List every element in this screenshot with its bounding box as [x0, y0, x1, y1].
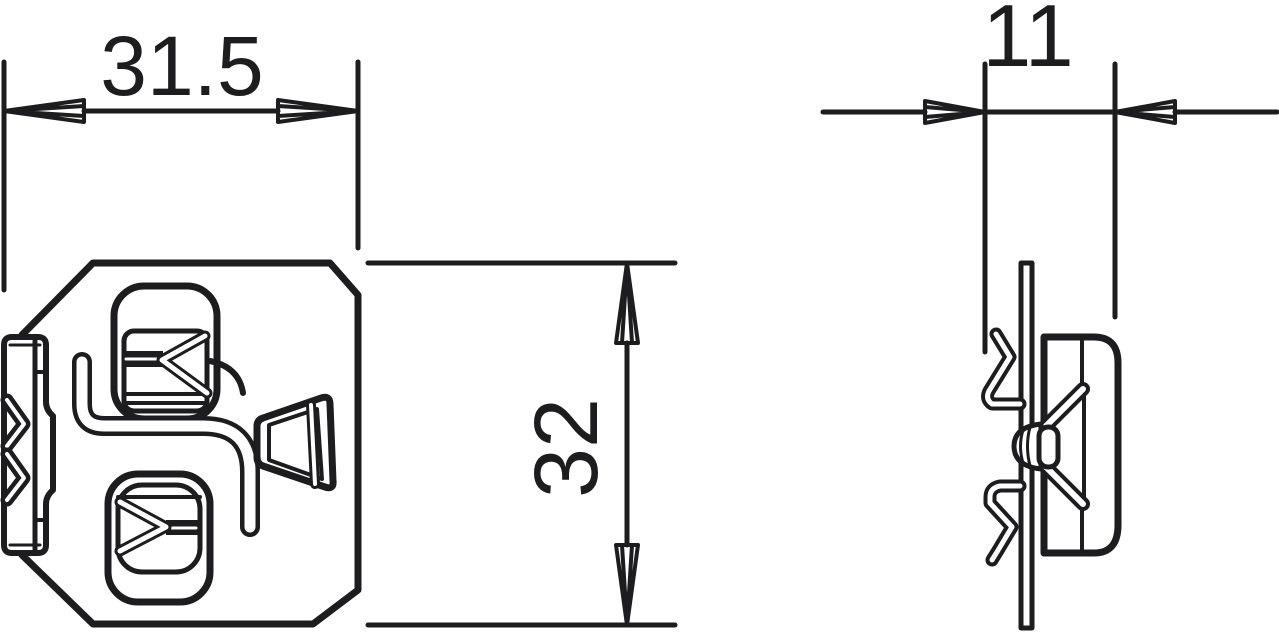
side-body-inner-lines [1082, 340, 1084, 550]
dimension-side-depth: 11 [823, 0, 1277, 352]
bottom-slot-claw [120, 502, 166, 551]
front-view [4, 263, 358, 624]
dim-width-label: 31.5 [100, 19, 264, 113]
drawing-stage: 31.5 32 11 [0, 0, 1279, 633]
dim-depth-label: 11 [982, 0, 1073, 85]
technical-drawing: 31.5 32 11 [0, 0, 1279, 633]
side-view [988, 263, 1118, 628]
top-slot-band-lines [124, 394, 207, 403]
dim-depth-extension-lines [985, 64, 1115, 352]
dim-height-label: 32 [517, 398, 617, 498]
dimension-front-height: 32 [368, 263, 675, 625]
dome-inner [1039, 427, 1058, 467]
dimension-front-width: 31.5 [4, 19, 358, 290]
